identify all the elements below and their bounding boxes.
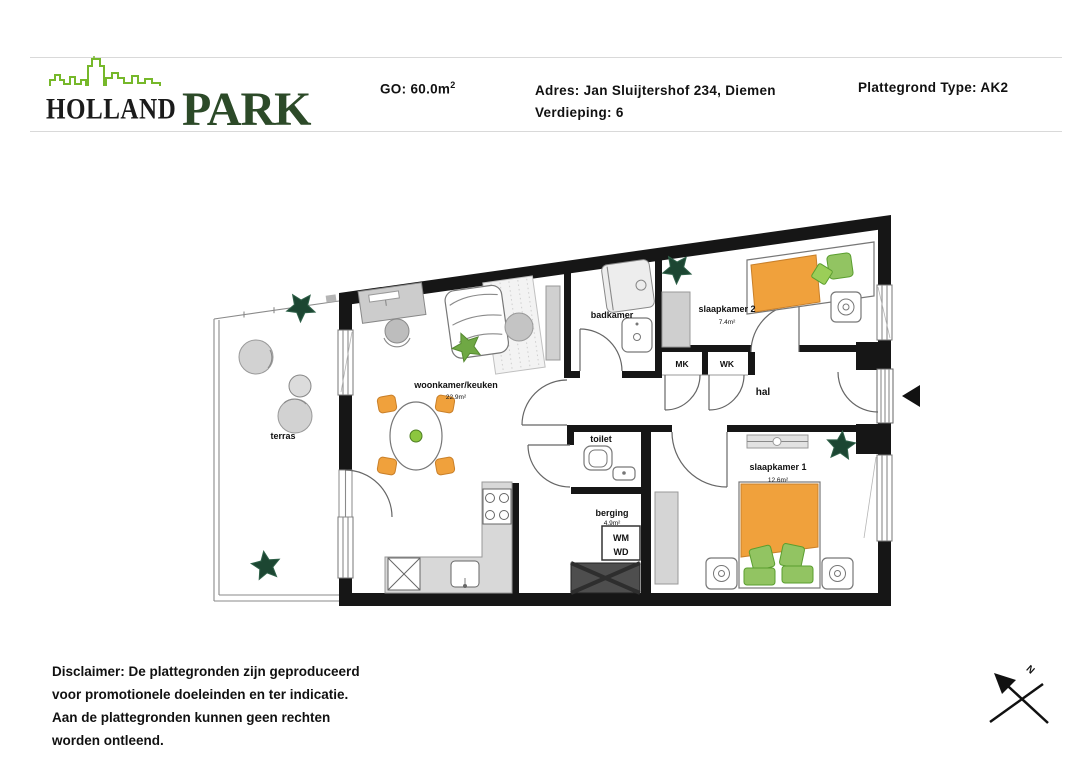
room-slaapkamer1: slaapkamer 1 12.6m² [655,427,860,589]
wk-label: WK [720,359,735,369]
disclaimer-line: worden ontleend. [52,729,360,752]
desk [358,283,426,324]
room-woonkamer: woonkamer/keuken 22.9m² [358,276,560,593]
woonkamer-label: woonkamer/keuken [413,380,498,390]
bed-pillow [782,566,813,583]
disclaimer-line: Disclaimer: De plattegronden zijn geprod… [52,660,360,683]
terras-table [289,375,311,397]
closet [662,292,690,347]
room-berging: WM WD berging 4.9m² [571,508,640,593]
north-arrow-icon: N [990,664,1048,723]
desk-chair [385,319,409,343]
terras-door [339,470,392,517]
wd-label: WD [614,547,629,557]
disclaimer-line: voor promotionele doeleinden en ter indi… [52,683,360,706]
plant-icon [663,257,692,284]
plant-icon [820,427,859,466]
living-hal-door [522,380,567,425]
woonkamer-area: 22.9m² [446,394,467,401]
front-door [838,369,920,423]
room-badkamer: badkamer [591,259,655,352]
nightstand [706,558,737,589]
terras-threshold [326,294,337,302]
shower [601,259,655,313]
slaapkamer1-door [672,432,727,487]
berging-area: 4.9m² [604,520,621,527]
slaapkamer2-area: 7.4m² [719,319,736,326]
terras-label: terras [270,431,295,441]
badkamer-door [580,329,622,371]
toilet-label: toilet [590,434,612,444]
window-slaapkamer1 [864,455,892,541]
bed-duvet [741,484,818,557]
slaapkamer2-label: slaapkamer 2 [698,304,755,314]
bed-duvet [751,255,820,312]
terras-chair [278,399,312,433]
floorplan-drawing: terras [0,0,1092,772]
window-slaapkamer2 [877,285,892,340]
bed-pillow [779,543,805,569]
wardrobe [655,492,678,584]
hal-label: hal [756,387,771,398]
pouf [505,313,533,341]
dining-set [377,395,456,476]
plant-icon [247,549,284,586]
slaapkamer1-label: slaapkamer 1 [749,462,806,472]
berging-label: berging [596,508,629,518]
window-living [338,330,353,395]
room-slaapkamer2: slaapkamer 2 7.4m² [662,242,874,347]
room-toilet: toilet [584,434,635,480]
nightstand [822,558,853,589]
sideboard [546,286,560,360]
room-terras: terras [214,294,339,601]
plant-icon [287,295,316,322]
page: { "header": { "logo": {"word1": "HOLLAND… [0,0,1092,772]
wk-door [709,375,744,410]
mk-door [665,375,700,410]
badkamer-label: badkamer [591,310,634,320]
mk-label: MK [675,359,689,369]
entrance-pier [856,342,878,370]
kitchen [385,482,512,593]
terras-chair [239,340,273,374]
slaapkamer1-area: 12.6m² [768,477,789,484]
window-living-2 [338,517,353,578]
toilet-door [528,445,570,487]
entrance-pier [856,424,878,454]
disclaimer-line: Aan de plattegronden kunnen geen rechten [52,706,360,729]
plant-icon [410,430,422,442]
entrance-arrow-icon [902,385,920,407]
bed-pillow [749,545,776,572]
nightstand [831,292,861,322]
disclaimer: Disclaimer: De plattegronden zijn geprod… [52,660,360,752]
wm-label: WM [613,533,629,543]
bed-pillow [744,568,775,585]
north-label: N [1024,664,1037,677]
